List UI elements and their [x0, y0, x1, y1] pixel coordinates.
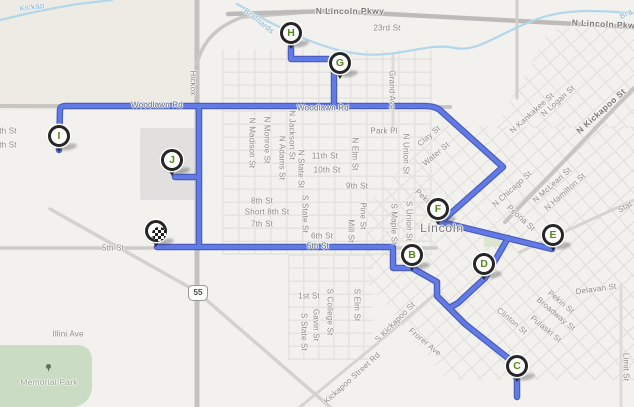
- marker-letter: H: [283, 25, 299, 41]
- road: [300, 295, 434, 407]
- marker-head: F: [427, 198, 449, 220]
- marker-head: I: [48, 125, 70, 147]
- route-stop-marker-e[interactable]: E: [542, 224, 564, 254]
- road: [505, 88, 634, 222]
- route-polyline[interactable]: [157, 247, 517, 397]
- route-stop-marker-g[interactable]: G: [329, 52, 351, 82]
- marker-head: H: [280, 22, 302, 44]
- marker-letter: C: [509, 358, 525, 374]
- marker-head: G: [329, 52, 351, 74]
- route-stop-marker-h[interactable]: H: [280, 22, 302, 52]
- marker-letter: G: [332, 55, 348, 71]
- route-stop-marker-d[interactable]: D: [473, 253, 495, 283]
- route-stop-marker-j[interactable]: J: [161, 149, 183, 179]
- depot-checker-icon: [145, 220, 167, 242]
- route-polyline-casing: [291, 47, 334, 106]
- marker-letter: E: [545, 227, 561, 243]
- marker-head: D: [473, 253, 495, 275]
- creek: [0, 0, 112, 20]
- marker-letter: I: [51, 128, 67, 144]
- route-polyline[interactable]: [441, 222, 552, 249]
- route-stop-marker-c[interactable]: C: [506, 355, 528, 385]
- roads-and-route-layer: [0, 0, 634, 407]
- depot-marker[interactable]: [145, 220, 167, 250]
- marker-letter: B: [404, 247, 420, 263]
- checkered-flag-icon: [152, 227, 166, 241]
- park-tree-icon: [46, 364, 51, 369]
- marker-head: J: [161, 149, 183, 171]
- highway-55-shield: 55: [188, 285, 208, 301]
- marker-letter: D: [476, 256, 492, 272]
- marker-head: B: [401, 244, 423, 266]
- route-stop-marker-b[interactable]: B: [401, 244, 423, 274]
- highway-55-label: 55: [194, 288, 203, 297]
- route-stop-marker-f[interactable]: F: [427, 198, 449, 228]
- marker-head: C: [506, 355, 528, 377]
- marker-letter: F: [430, 201, 446, 217]
- road: [50, 209, 330, 407]
- marker-head: E: [542, 224, 564, 246]
- marker-letter: J: [164, 152, 180, 168]
- route-stop-marker-i[interactable]: I: [48, 125, 70, 155]
- map-canvas[interactable]: 55 N Lincoln PkwyN Lincoln Pkwy23rd StWo…: [0, 0, 634, 407]
